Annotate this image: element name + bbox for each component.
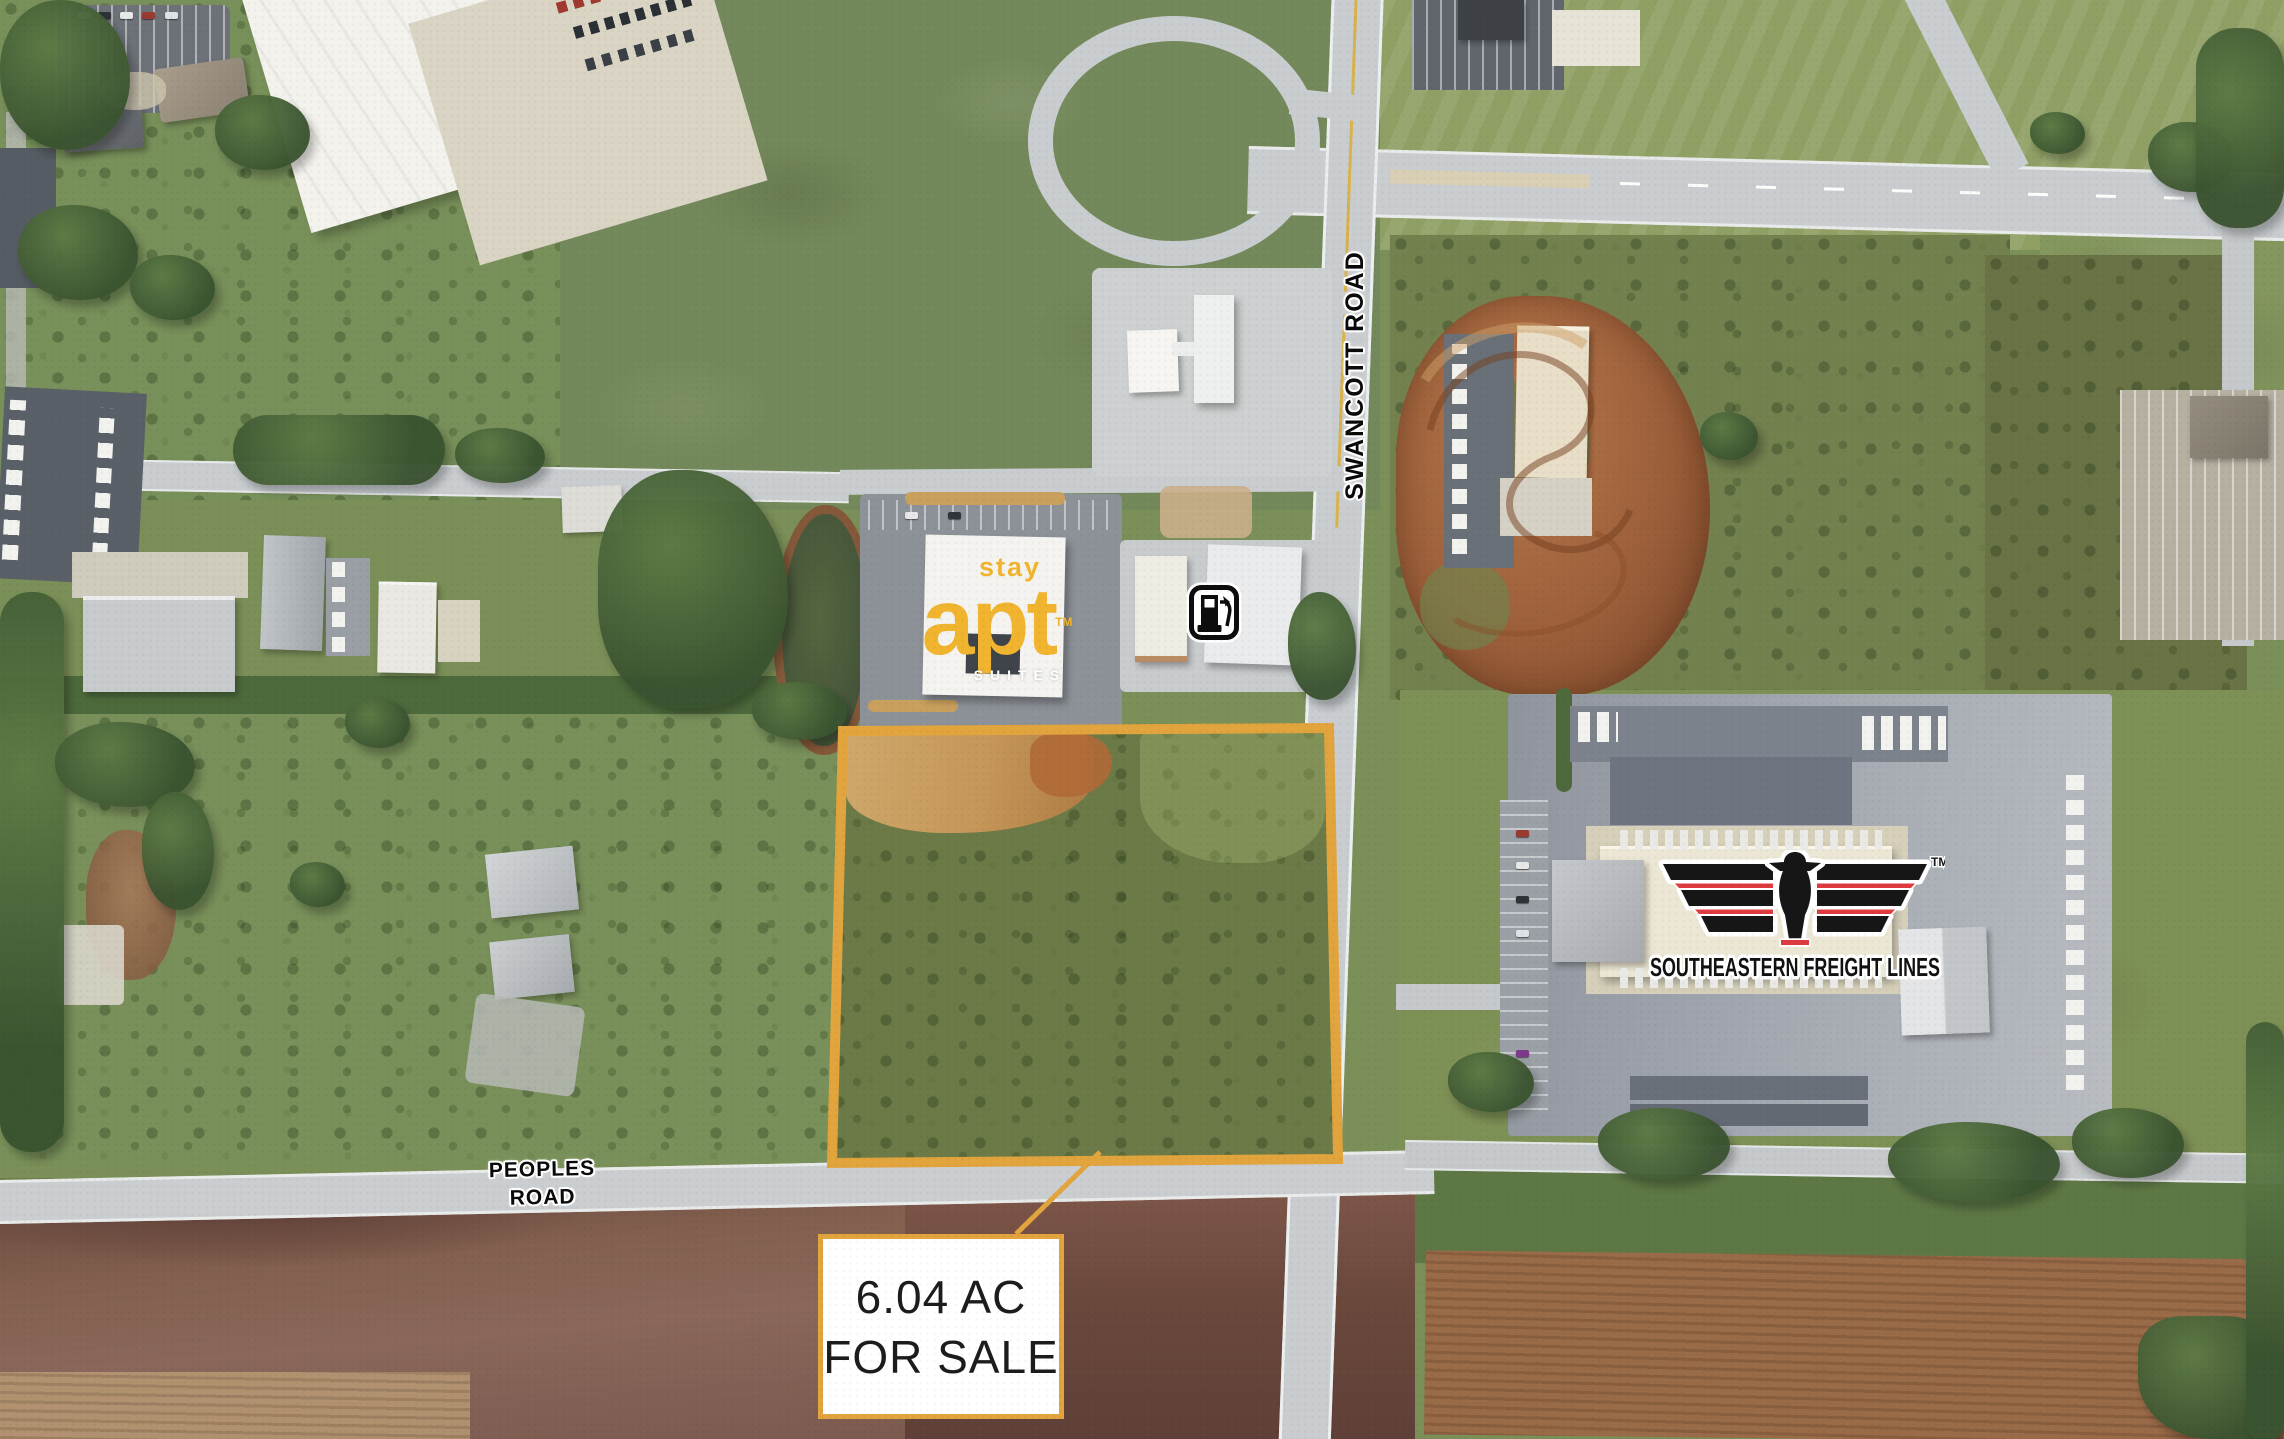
road-label-swancott-text: SWANCOTT ROAD: [1341, 250, 1369, 500]
callout-status: FOR SALE: [823, 1334, 1059, 1380]
sefl-eagle-emblem: TM: [1645, 850, 1945, 950]
aerial-site-map: SWANCOTT ROAD PEOPLES ROAD stay aptTM SU…: [0, 0, 2284, 1439]
road-label-swancott: SWANCOTT ROAD: [1335, 250, 1375, 500]
stay-apt-logo-suites: SUITES: [974, 668, 1067, 682]
sefl-logo: TM SOUTHEASTERN FREIGHT LINES: [1645, 850, 1945, 990]
stay-apt-logo: stay aptTM SUITES: [912, 554, 1082, 682]
callout-acreage: 6.04 AC: [856, 1274, 1027, 1320]
for-sale-callout: 6.04 AC FOR SALE: [818, 1234, 1064, 1419]
sefl-wordmark: SOUTHEASTERN FREIGHT LINES: [1645, 951, 1945, 985]
parcel-outline: [832, 728, 1338, 1163]
sefl-wordmark-text: SOUTHEASTERN FREIGHT LINES: [1650, 952, 1940, 982]
road-label-peoples: PEOPLES ROAD: [452, 1154, 633, 1186]
stay-apt-trademark: TM: [1055, 615, 1072, 629]
sefl-trademark: TM: [1931, 855, 1945, 869]
dirt-track-squiggle: [1430, 354, 1630, 549]
fuel-station-icon: [1185, 581, 1243, 644]
stay-apt-logo-main: aptTM: [922, 575, 1073, 670]
overlay-graphics: [0, 0, 2284, 1439]
dirt-track-squiggle: [1455, 533, 1624, 634]
